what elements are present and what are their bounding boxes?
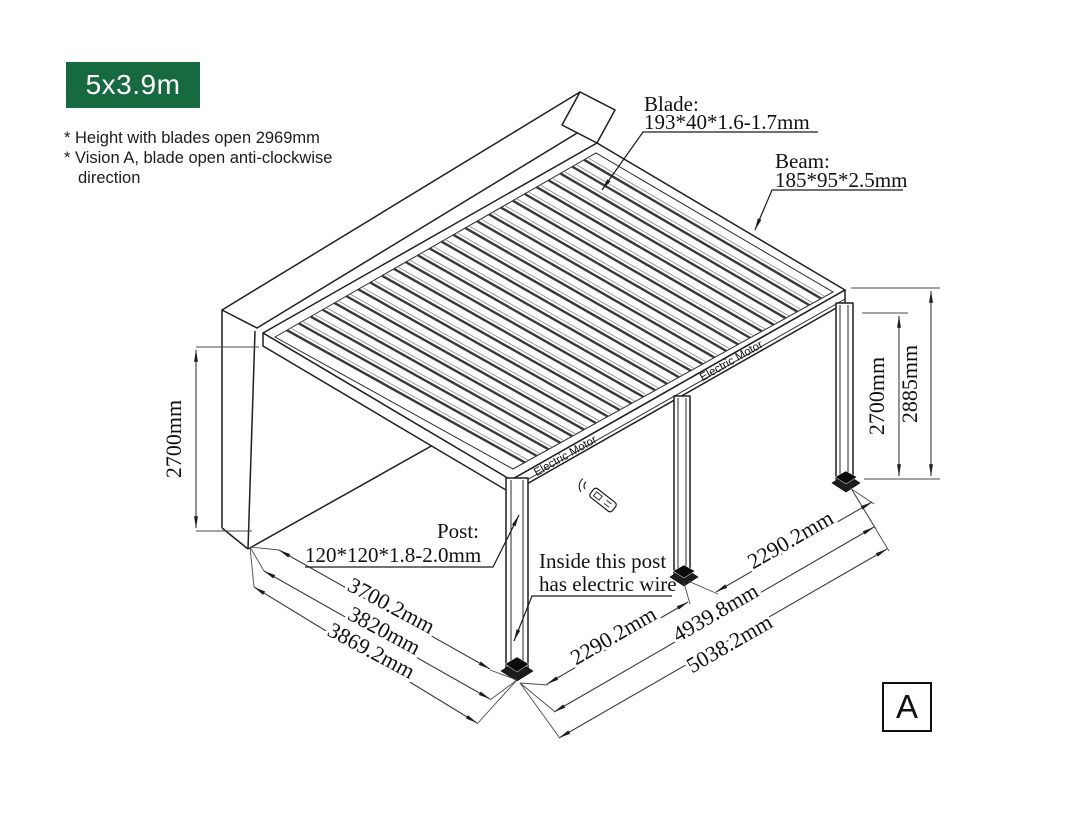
signal-waves-icon: [579, 479, 586, 493]
dim-front-bay: 2290.2mm: [566, 601, 661, 670]
wire-note-line2: has electric wire: [539, 572, 677, 596]
post-callout-title: Post:: [437, 519, 479, 543]
beam-callout-spec: 185*95*2.5mm: [775, 168, 907, 192]
blade-callout-spec: 193*40*1.6-1.7mm: [644, 110, 810, 134]
wire-note-line1: Inside this post: [539, 549, 666, 573]
dim-total-height: 2885mm: [897, 345, 922, 423]
view-marker-label: A: [896, 688, 918, 726]
view-marker-box: A: [882, 682, 932, 732]
post-callout-spec: 120*120*1.8-2.0mm: [305, 543, 481, 567]
remote-control-icon: [579, 479, 617, 513]
dim-wall-height: 2700mm: [161, 400, 186, 478]
pergola-drawing-page: 5x3.9m * Height with blades open 2969mm …: [0, 0, 1080, 831]
right-post: [836, 303, 853, 479]
middle-post: [674, 396, 690, 576]
dim-post-height: 2700mm: [864, 357, 889, 435]
dim-side-bay: 2290.2mm: [743, 505, 838, 574]
front-post: [506, 478, 528, 668]
louvered-roof: Electric Motor Electric Motor: [263, 143, 845, 493]
